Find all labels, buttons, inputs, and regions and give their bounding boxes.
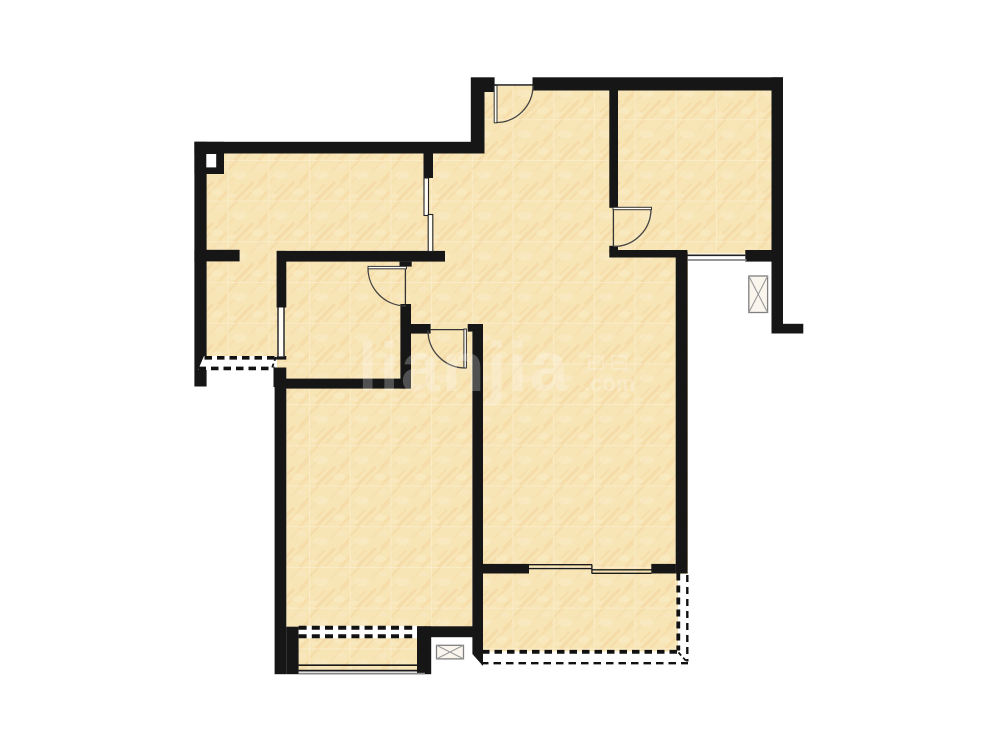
svg-text:lianjia: lianjia [358, 328, 570, 406]
svg-text:.com: .com [584, 371, 635, 396]
